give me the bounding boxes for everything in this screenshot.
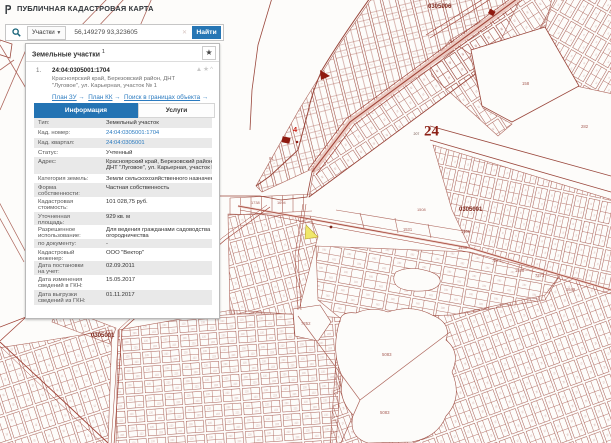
svg-text:158: 158 <box>522 81 530 86</box>
svg-text:282: 282 <box>581 124 589 129</box>
svg-text:7374: 7374 <box>492 258 502 263</box>
svg-text:91: 91 <box>269 156 274 161</box>
svg-text:0305001: 0305001 <box>459 207 483 213</box>
svg-text:1531: 1531 <box>403 227 413 232</box>
svg-text:1448: 1448 <box>458 245 468 250</box>
svg-text:7373: 7373 <box>535 273 545 278</box>
svg-text:24: 24 <box>424 124 440 140</box>
svg-text:5083: 5083 <box>382 352 392 357</box>
svg-text:0305001: 0305001 <box>91 333 115 339</box>
svg-text:0305006: 0305006 <box>428 4 452 10</box>
svg-text:207: 207 <box>414 132 420 136</box>
svg-text:1694: 1694 <box>277 200 286 205</box>
svg-text:1738: 1738 <box>251 200 260 205</box>
svg-text:1405: 1405 <box>461 229 471 234</box>
svg-text:5083: 5083 <box>380 410 390 415</box>
svg-text:1649: 1649 <box>566 287 576 292</box>
svg-text:1598: 1598 <box>515 268 525 273</box>
svg-text:1508: 1508 <box>417 207 426 212</box>
svg-text:7252: 7252 <box>301 321 311 326</box>
